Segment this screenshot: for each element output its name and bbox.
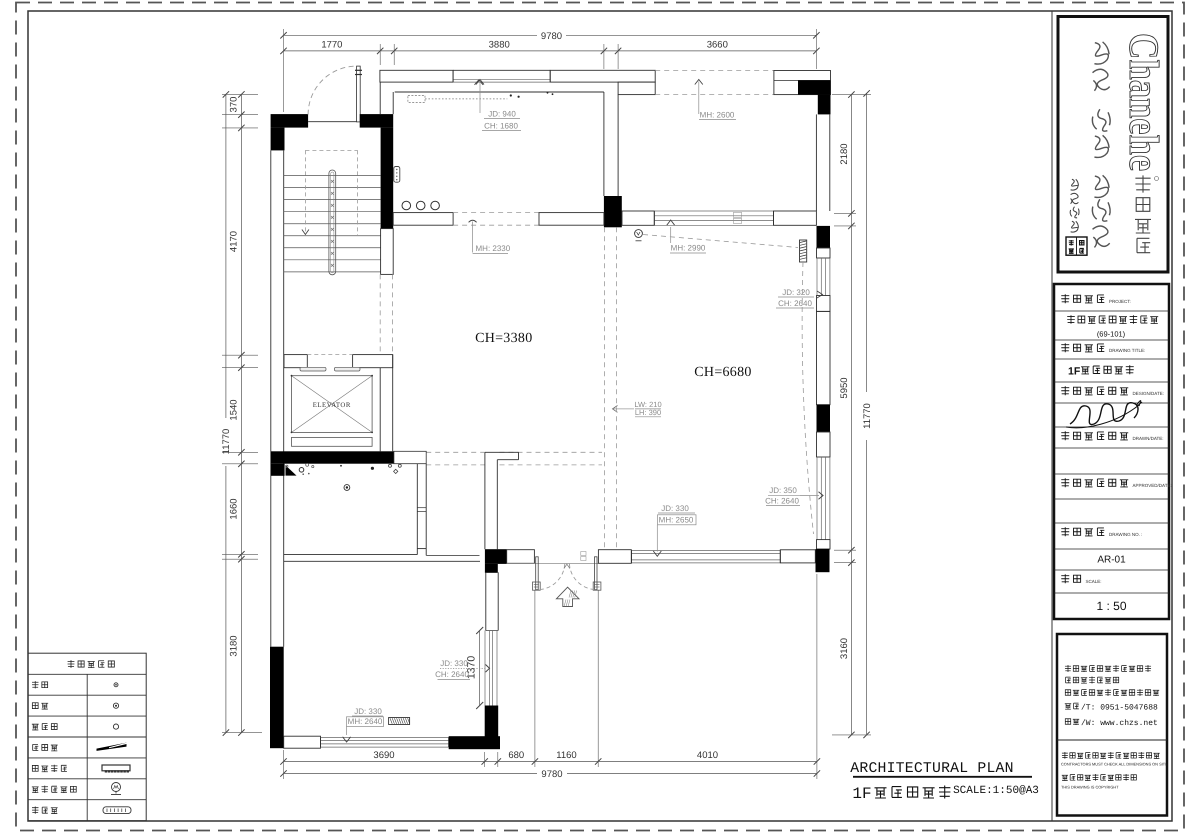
svg-text:CH: 2640: CH: 2640 <box>765 497 799 506</box>
svg-text:1540: 1540 <box>229 399 240 420</box>
svg-text:LH: 390: LH: 390 <box>635 408 661 417</box>
svg-text:JD: 330: JD: 330 <box>440 659 468 668</box>
svg-text:2180: 2180 <box>839 143 850 164</box>
svg-text:3880: 3880 <box>489 40 510 51</box>
svg-text:(69-101): (69-101) <box>1097 330 1126 339</box>
svg-text:ARCHITECTURAL PLAN: ARCHITECTURAL PLAN <box>850 761 1013 777</box>
svg-text:3160: 3160 <box>839 638 850 659</box>
svg-text:MH: 2650: MH: 2650 <box>659 516 694 525</box>
svg-text:9780: 9780 <box>541 769 562 780</box>
svg-text:CH=6680: CH=6680 <box>694 365 751 380</box>
svg-text:ELEVATOR: ELEVATOR <box>313 402 351 409</box>
svg-text:APPROVED/DATE:: APPROVED/DATE: <box>1133 483 1172 488</box>
svg-text:11770: 11770 <box>221 429 232 455</box>
svg-text:9780: 9780 <box>541 31 562 42</box>
svg-text:11770: 11770 <box>862 403 873 429</box>
svg-text:4170: 4170 <box>229 231 240 252</box>
svg-text:JD: 940: JD: 940 <box>488 110 516 119</box>
svg-text:DRAWN/DATE:: DRAWN/DATE: <box>1133 436 1164 441</box>
svg-text:3180: 3180 <box>229 635 240 656</box>
svg-text:CH: 2640: CH: 2640 <box>435 670 469 679</box>
svg-text:SCALE:: SCALE: <box>1086 579 1102 584</box>
svg-text:1F: 1F <box>1068 366 1081 378</box>
svg-text:MH: 2330: MH: 2330 <box>476 244 511 253</box>
svg-text:1 : 50: 1 : 50 <box>1096 599 1126 613</box>
svg-text:CONTRACTORS MUST CHECK ALL DIM: CONTRACTORS MUST CHECK ALL DIMENSIONS ON… <box>1061 762 1168 767</box>
svg-text:1660: 1660 <box>229 498 240 519</box>
svg-text:/T: 0951-5047688: /T: 0951-5047688 <box>1081 704 1158 713</box>
svg-text:CH=3380: CH=3380 <box>475 331 532 346</box>
svg-text:CH: 2640: CH: 2640 <box>778 299 812 308</box>
svg-text:3660: 3660 <box>707 40 728 51</box>
svg-text:MH: 2990: MH: 2990 <box>671 244 706 253</box>
svg-text:/W: www.chzs.net: /W: www.chzs.net <box>1081 719 1158 728</box>
svg-text:1F: 1F <box>852 785 871 803</box>
svg-text:680: 680 <box>508 750 524 761</box>
svg-text:JD: 330: JD: 330 <box>354 707 382 716</box>
svg-text:3690: 3690 <box>373 750 394 761</box>
svg-text:THIS DRAWING IS COPYRIGHT: THIS DRAWING IS COPYRIGHT <box>1061 785 1119 790</box>
svg-text:PROJECT:: PROJECT: <box>1109 299 1131 304</box>
svg-text:DRAWING NO. :: DRAWING NO. : <box>1109 532 1142 537</box>
svg-text:MH: 2600: MH: 2600 <box>700 111 735 120</box>
svg-text:DESIGN/DATE:: DESIGN/DATE: <box>1133 391 1164 396</box>
svg-text:MH: 2640: MH: 2640 <box>348 717 383 726</box>
svg-text:AR-01: AR-01 <box>1097 555 1126 566</box>
svg-text:CH: 1680: CH: 1680 <box>484 122 518 131</box>
svg-text:JD: 350: JD: 350 <box>769 486 797 495</box>
svg-text:1770: 1770 <box>321 40 342 51</box>
svg-text:1160: 1160 <box>556 750 576 761</box>
svg-text:SCALE:1:50@A3: SCALE:1:50@A3 <box>953 785 1039 797</box>
svg-text:370: 370 <box>229 97 240 113</box>
svg-text:5950: 5950 <box>839 377 850 398</box>
svg-text:JD: 330: JD: 330 <box>661 504 689 513</box>
svg-text:DRAWING TITLE:: DRAWING TITLE: <box>1109 348 1145 353</box>
svg-text:JD: 320: JD: 320 <box>782 288 810 297</box>
svg-text:4010: 4010 <box>697 750 718 761</box>
svg-text:Chanehe: Chanehe <box>1120 33 1166 171</box>
